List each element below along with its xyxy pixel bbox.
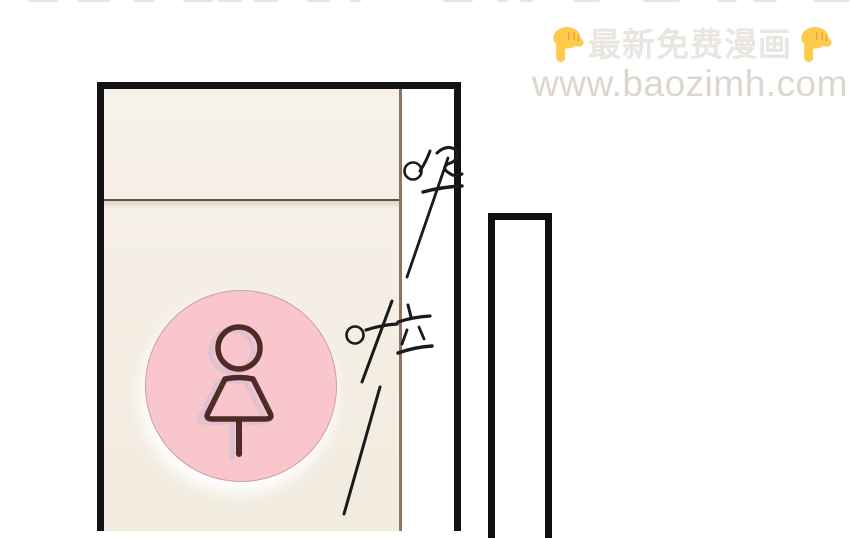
watermark-text: 最新免费漫画 (588, 25, 792, 65)
wall-panel (488, 213, 552, 538)
door-divider-shadow (104, 201, 399, 209)
pointing-down-icon (796, 24, 832, 66)
pointing-down-icon (548, 24, 584, 66)
comic-page: { "watermark": { "line1": "最新免费漫画", "lin… (0, 0, 850, 531)
door-divider-line (104, 199, 399, 201)
watermark-url: www.baozimh.com (530, 65, 850, 103)
watermark-line1: 最新免费漫画 (530, 24, 850, 66)
door-frame-gap (402, 89, 454, 531)
womens-restroom-sign (145, 290, 337, 482)
site-watermark: 最新免费漫画 www.baozimh.com (530, 24, 850, 103)
female-figure-icon (146, 291, 336, 481)
